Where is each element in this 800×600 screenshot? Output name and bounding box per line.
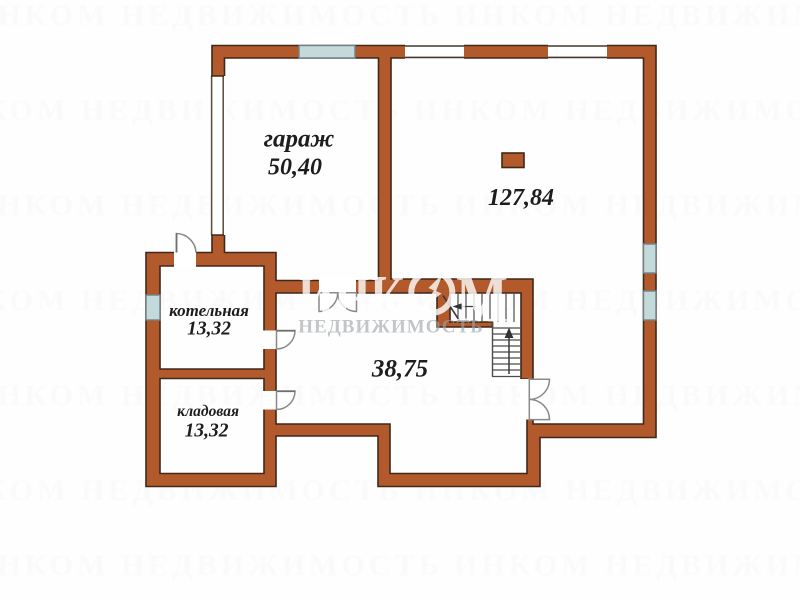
svg-text:ИНКОМ НЕДВИЖИМОСТЬ ИНКОМ НЕДВИ: ИНКОМ НЕДВИЖИМОСТЬ ИНКОМ НЕДВИЖИМОСТЬ [0, 189, 800, 222]
svg-text:13,32: 13,32 [187, 319, 231, 340]
svg-text:кладовая: кладовая [177, 403, 239, 420]
svg-text:38,75: 38,75 [371, 356, 428, 383]
svg-text:ИНКОМ НЕДВИЖИМОСТЬ ИНКОМ НЕДВИ: ИНКОМ НЕДВИЖИМОСТЬ ИНКОМ НЕДВИЖИМОСТЬ [0, 94, 800, 127]
svg-text:ИНКОМ НЕДВИЖИМОСТЬ ИНКОМ НЕДВИ: ИНКОМ НЕДВИЖИМОСТЬ ИНКОМ НЕДВИЖИМОСТЬ [0, 379, 800, 412]
svg-text:ИНКОМ НЕДВИЖИМОСТЬ ИНКОМ НЕДВИ: ИНКОМ НЕДВИЖИМОСТЬ ИНКОМ НЕДВИЖИМОСТЬ [0, 549, 800, 582]
svg-text:127,84: 127,84 [488, 185, 554, 211]
svg-text:ИНКОМ НЕДВИЖИМОСТЬ ИНКОМ НЕДВИ: ИНКОМ НЕДВИЖИМОСТЬ ИНКОМ НЕДВИЖИМОСТЬ [0, 0, 800, 32]
svg-text:котельная: котельная [169, 301, 249, 320]
svg-text:гараж: гараж [264, 126, 335, 153]
svg-text:13,32: 13,32 [185, 421, 229, 442]
svg-text:50,40: 50,40 [268, 155, 322, 181]
svg-text:НЕДВИЖИМОСТЬ: НЕДВИЖИМОСТЬ [298, 317, 483, 338]
